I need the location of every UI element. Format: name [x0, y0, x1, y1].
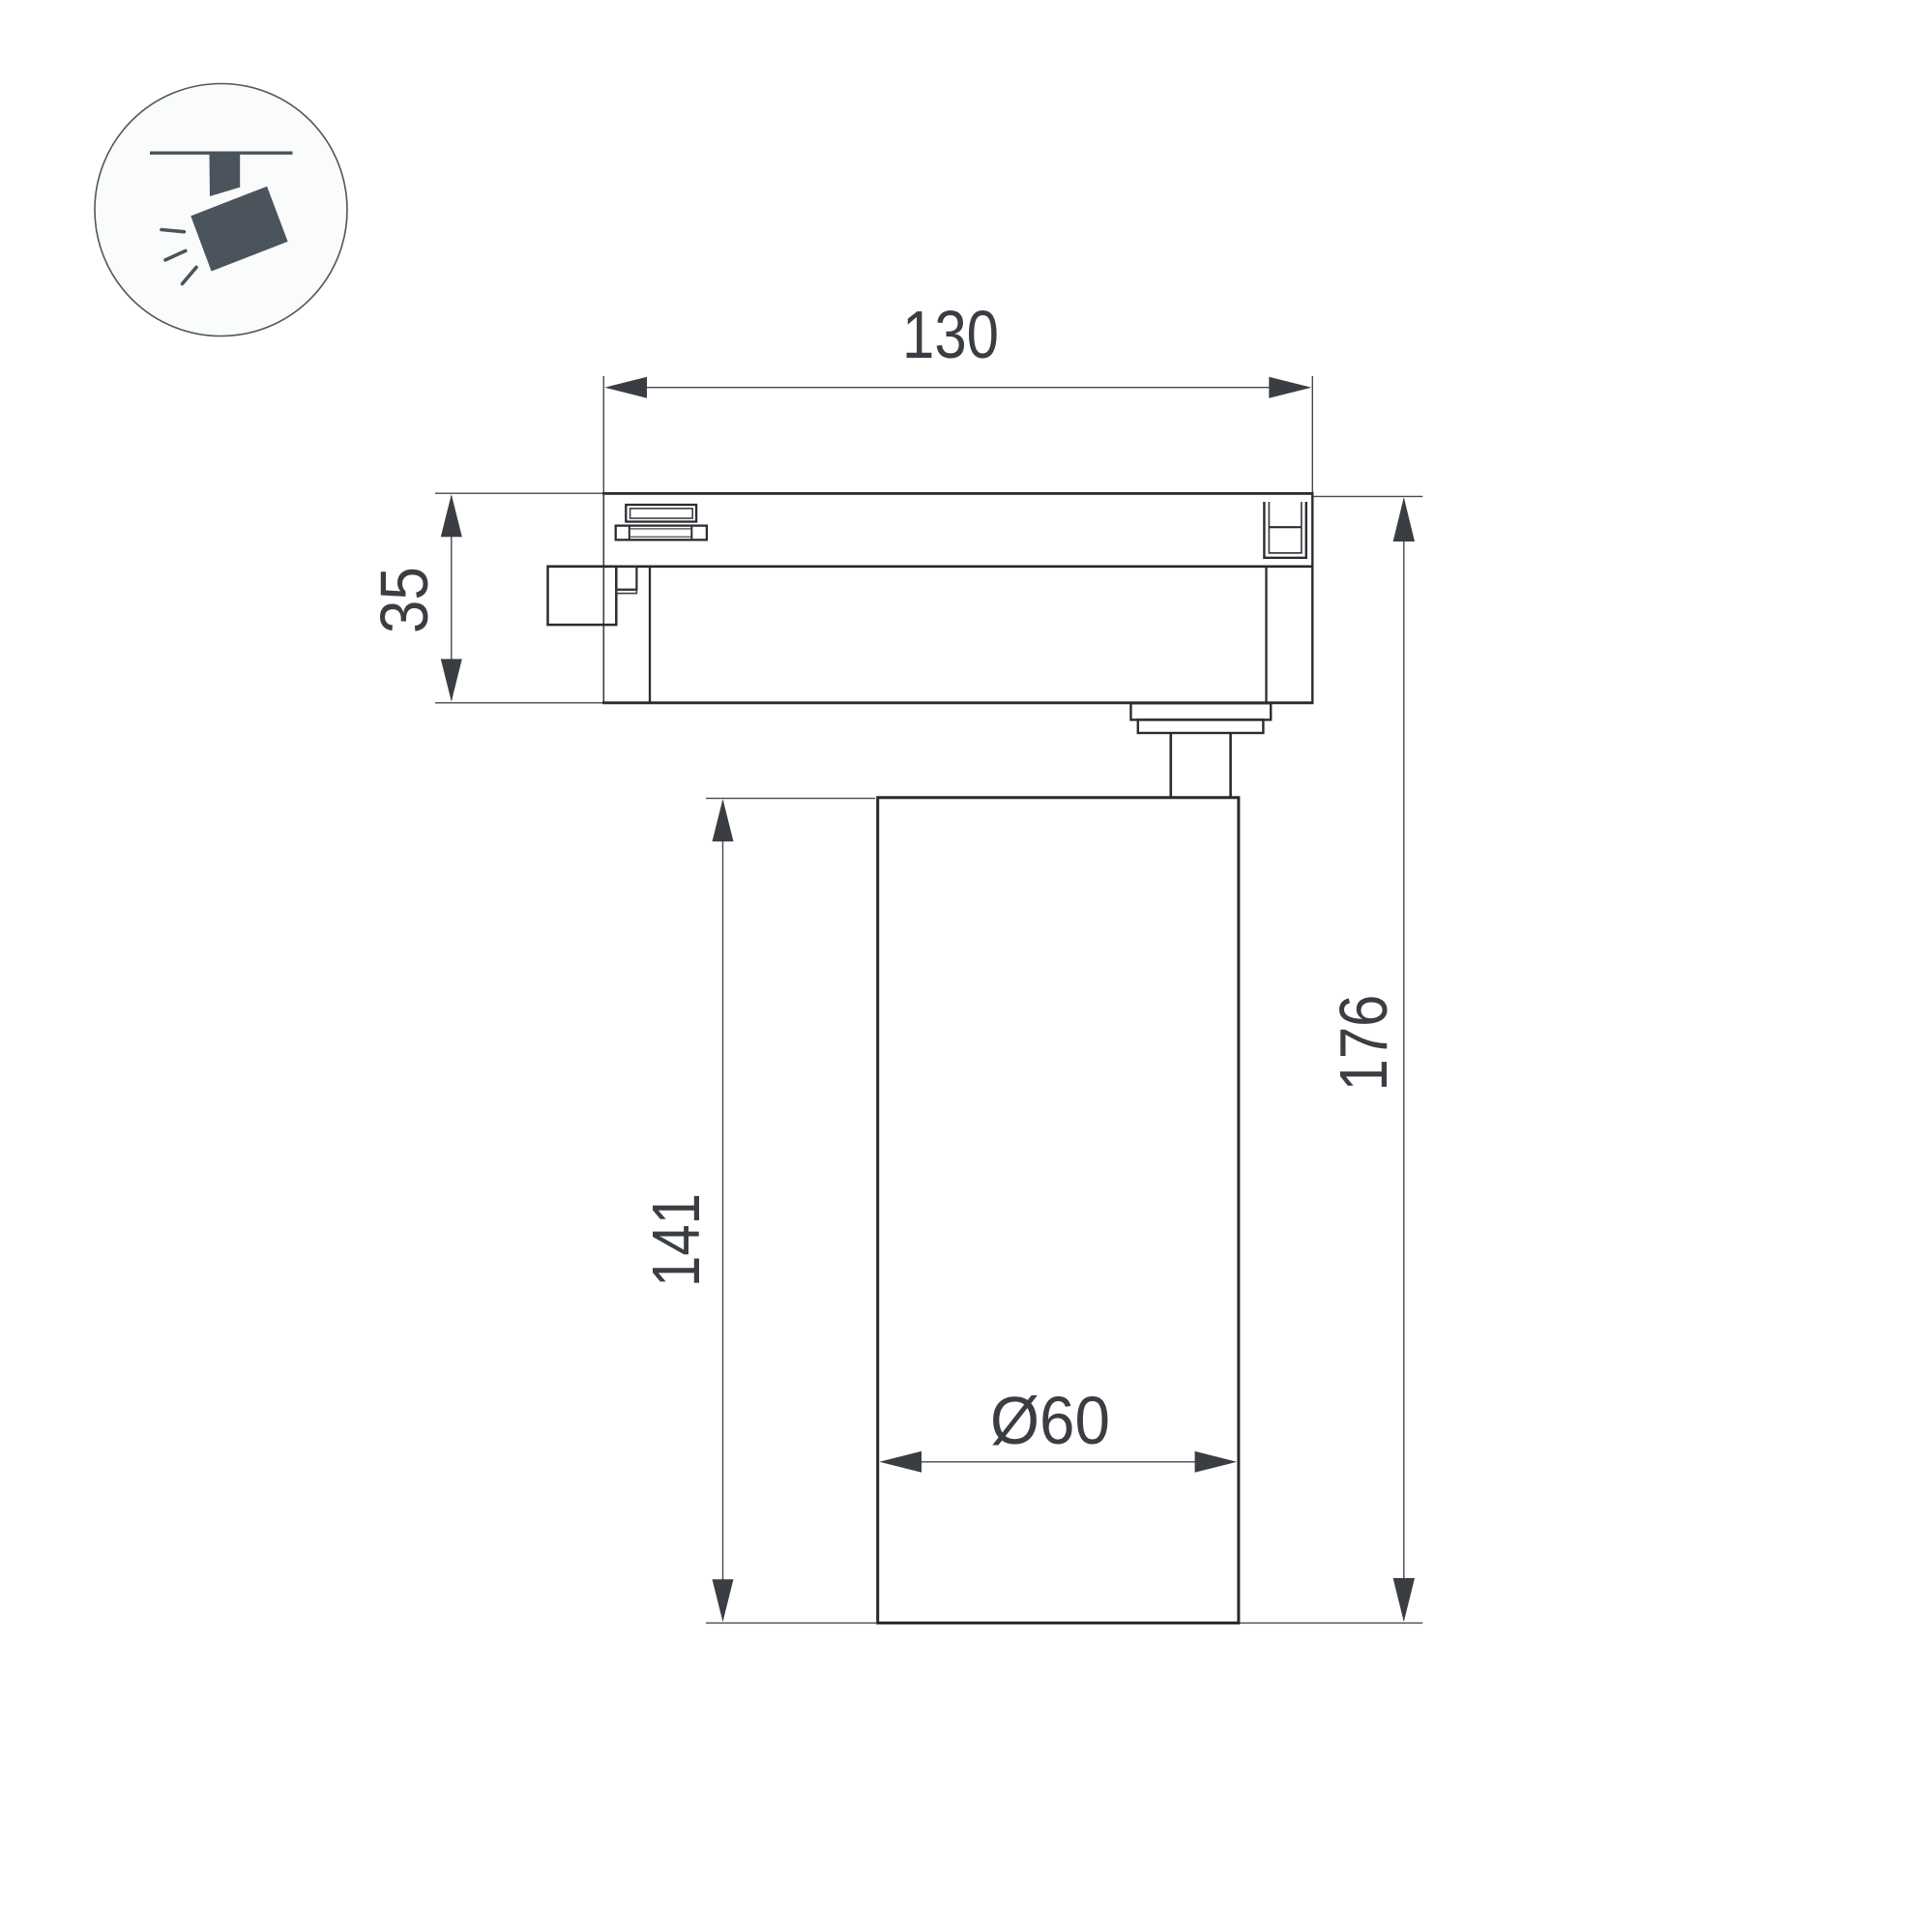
- svg-text:Ø60: Ø60: [990, 1383, 1110, 1458]
- svg-text:130: 130: [902, 297, 999, 372]
- svg-text:141: 141: [638, 1193, 714, 1287]
- svg-text:35: 35: [366, 567, 442, 633]
- svg-text:176: 176: [1326, 995, 1401, 1092]
